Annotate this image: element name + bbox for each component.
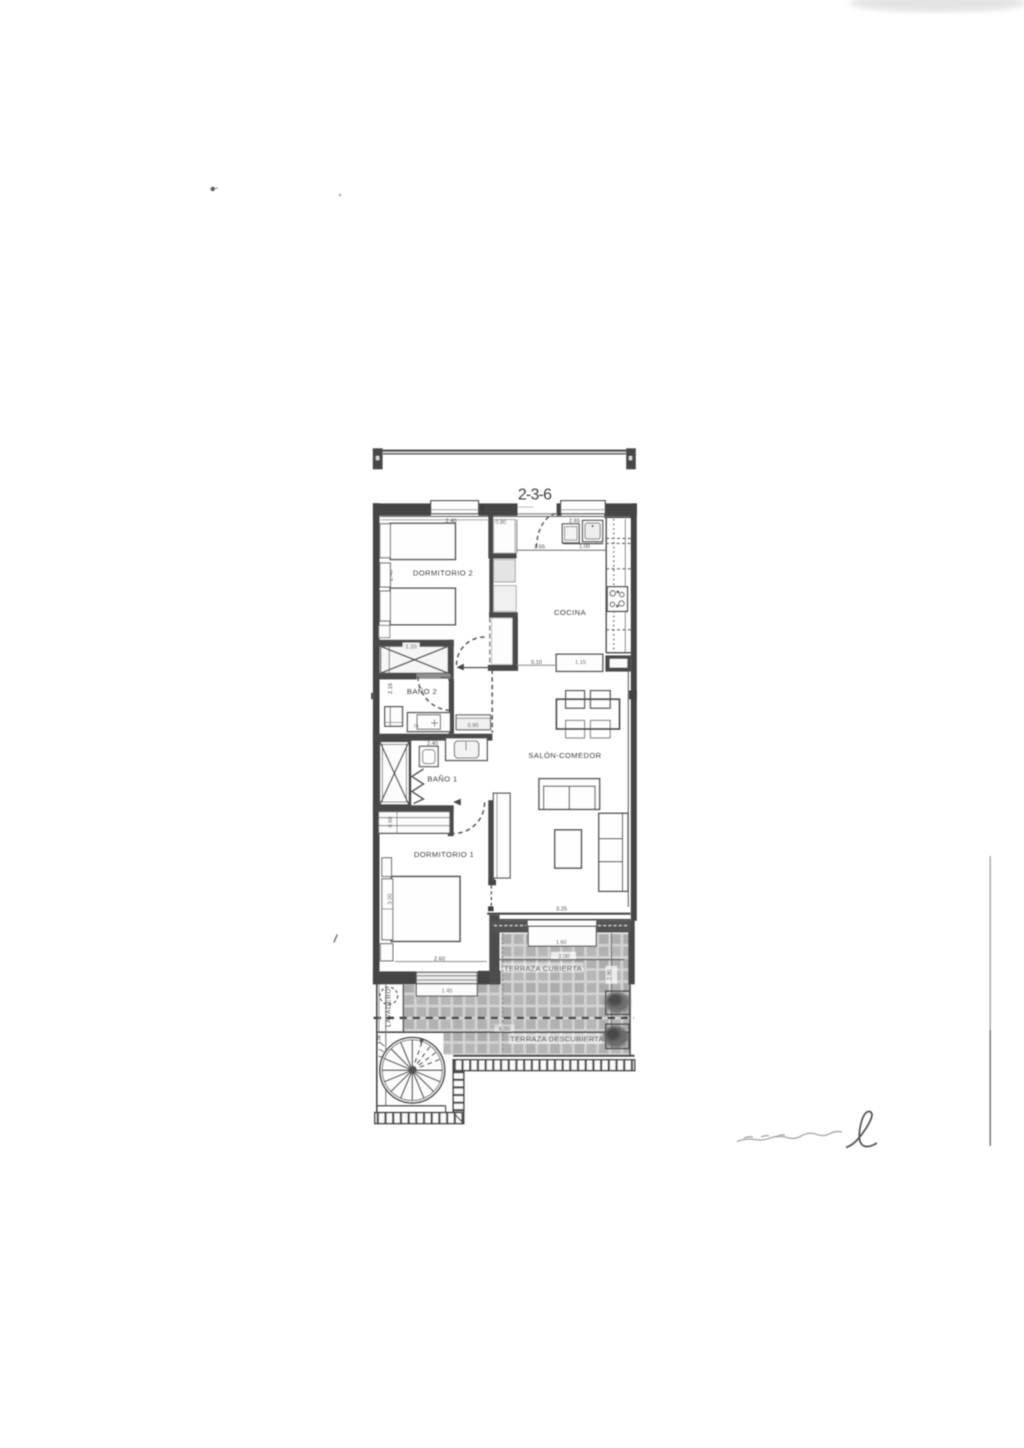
svg-text:0.90: 0.90 bbox=[468, 723, 479, 729]
svg-text:1.00: 1.00 bbox=[579, 544, 590, 550]
svg-text:TERRAZA CUBIERTA: TERRAZA CUBIERTA bbox=[504, 964, 582, 973]
svg-text:2-3-6: 2-3-6 bbox=[518, 487, 552, 504]
svg-text:2.00: 2.00 bbox=[559, 954, 570, 960]
svg-text:TERRAZA DESCUBIERTA: TERRAZA DESCUBIERTA bbox=[510, 1035, 604, 1044]
svg-text:75: 75 bbox=[413, 724, 419, 730]
svg-text:DORMITORIO 2: DORMITORIO 2 bbox=[413, 569, 473, 578]
svg-text:COCINA: COCINA bbox=[554, 608, 586, 617]
svg-text:1.15: 1.15 bbox=[575, 660, 586, 666]
svg-text:1.65: 1.65 bbox=[534, 545, 545, 551]
svg-text:LAVADERO: LAVADERO bbox=[386, 988, 393, 1027]
svg-text:SALÓN-COMEDOR: SALÓN-COMEDOR bbox=[528, 751, 601, 760]
svg-text:2.60: 2.60 bbox=[434, 956, 445, 962]
svg-text:DORMITORIO 1: DORMITORIO 1 bbox=[414, 850, 474, 859]
svg-text:1.45: 1.45 bbox=[442, 988, 453, 994]
svg-text:0.80: 0.80 bbox=[495, 520, 506, 526]
svg-text:6.00: 6.00 bbox=[499, 1027, 510, 1033]
svg-text:1.60: 1.60 bbox=[556, 940, 567, 946]
svg-text:2.90: 2.90 bbox=[607, 969, 613, 980]
svg-text:BAÑO 1: BAÑO 1 bbox=[427, 774, 457, 783]
svg-text:3.00: 3.00 bbox=[387, 894, 393, 905]
svg-text:1.20: 1.20 bbox=[406, 644, 417, 650]
svg-text:0.10: 0.10 bbox=[531, 660, 542, 666]
svg-text:2.16: 2.16 bbox=[388, 683, 394, 694]
svg-text:3.25: 3.25 bbox=[556, 907, 567, 913]
svg-text:0.60: 0.60 bbox=[388, 817, 394, 828]
